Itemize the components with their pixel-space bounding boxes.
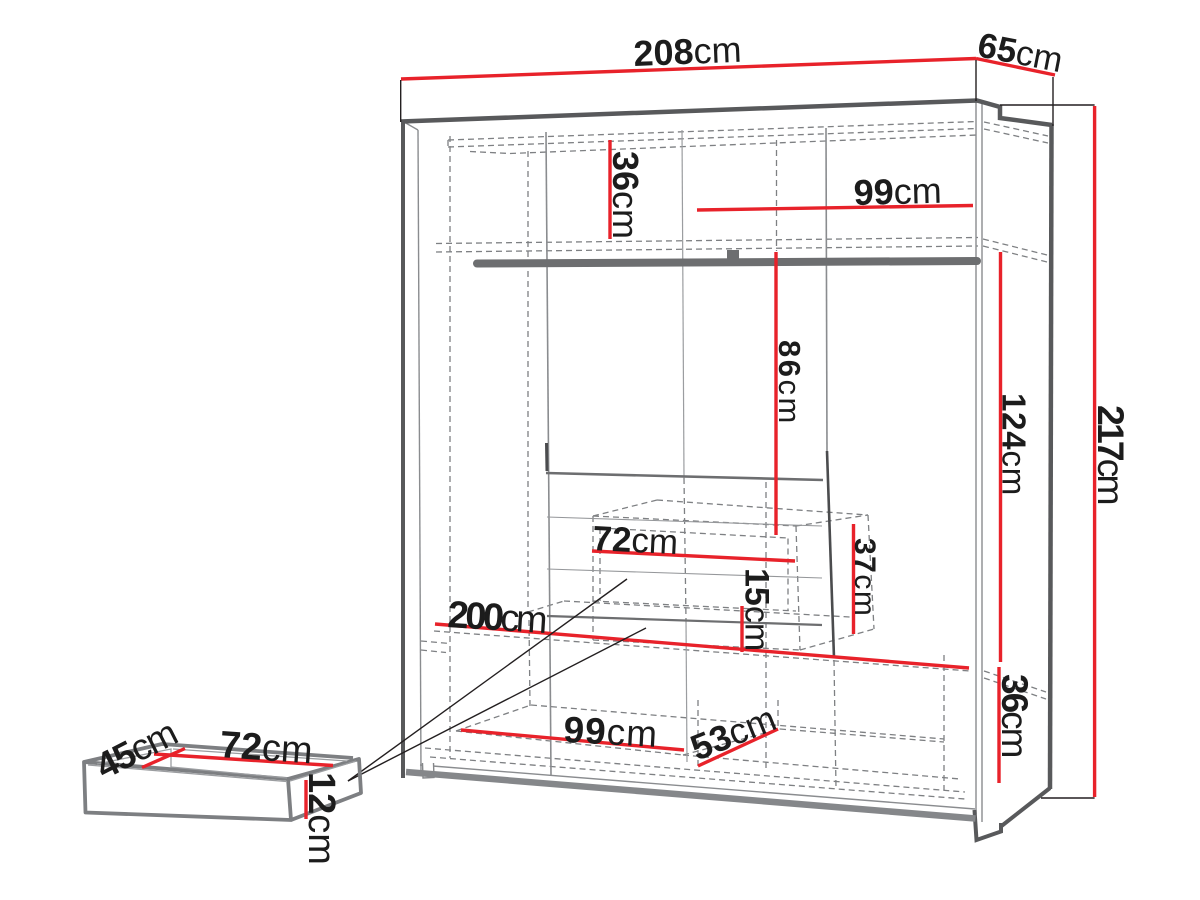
svg-text:86cm: 86cm: [772, 340, 807, 426]
svg-text:36cm: 36cm: [605, 151, 646, 239]
svg-text:99cm: 99cm: [853, 170, 942, 213]
svg-text:208cm: 208cm: [633, 29, 743, 74]
svg-text:36cm: 36cm: [994, 674, 1035, 757]
svg-text:124cm: 124cm: [996, 393, 1033, 496]
svg-text:37cm: 37cm: [848, 538, 881, 617]
svg-text:217cm: 217cm: [1090, 405, 1132, 503]
svg-text:200cm: 200cm: [446, 594, 547, 642]
svg-text:72cm: 72cm: [218, 724, 314, 772]
svg-text:12cm: 12cm: [300, 772, 342, 865]
svg-text:15cm: 15cm: [738, 568, 776, 651]
svg-text:99cm: 99cm: [563, 709, 660, 755]
svg-text:72cm: 72cm: [592, 519, 679, 562]
